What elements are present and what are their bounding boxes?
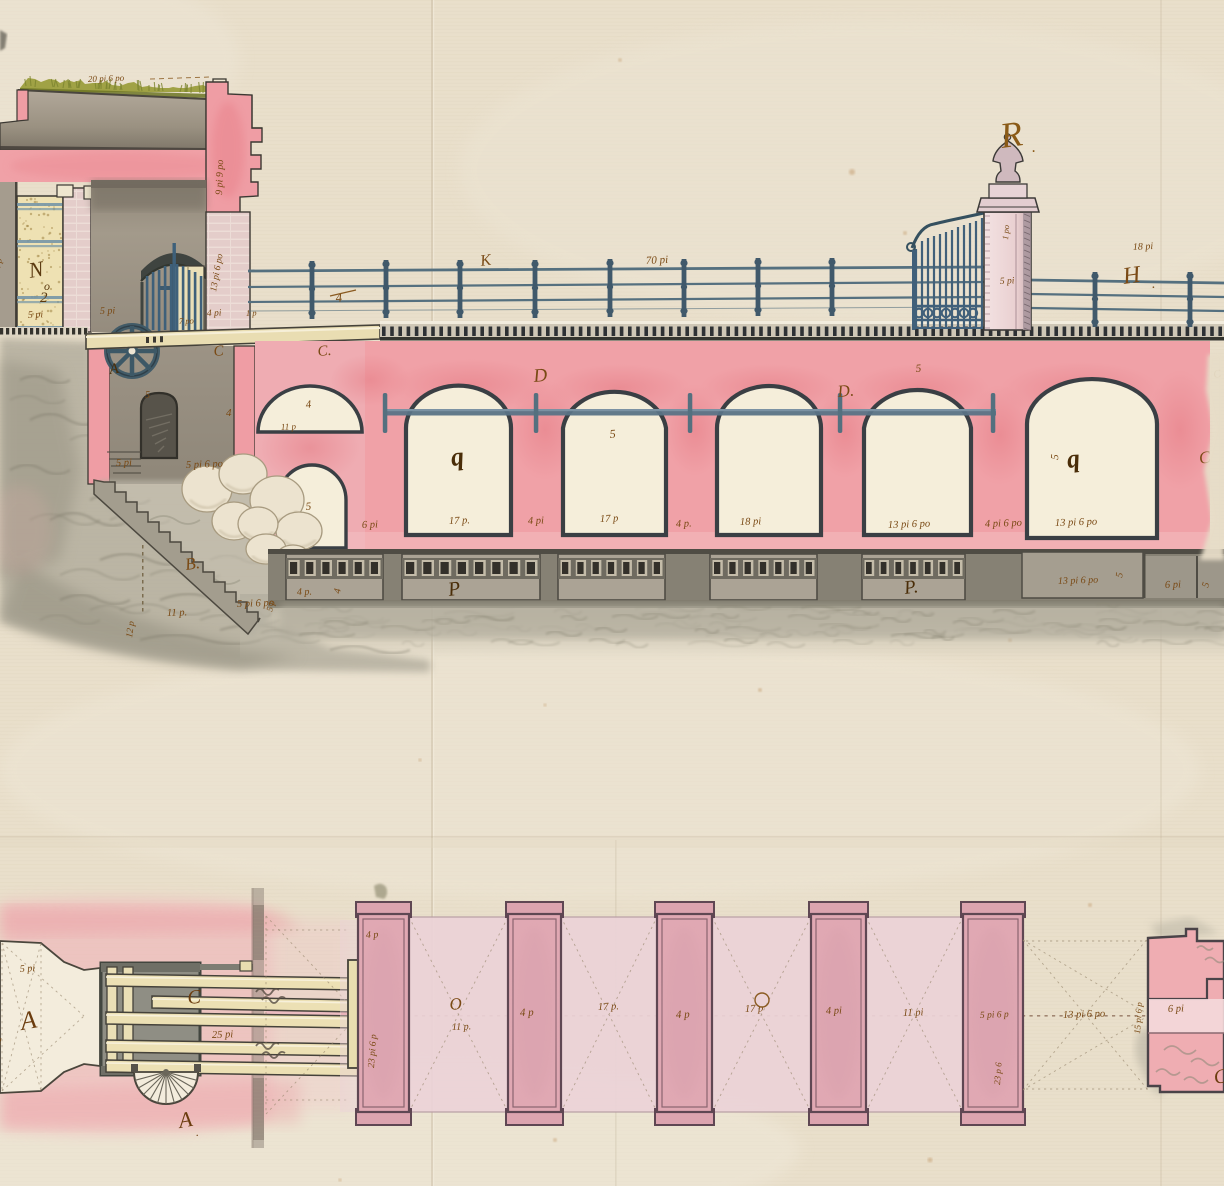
svg-text:5 pi: 5 pi [1000, 276, 1015, 287]
svg-text:5 pi: 5 pi [19, 963, 35, 975]
svg-text:.: . [1152, 277, 1156, 292]
svg-text:13 pi 6 po: 13 pi 6 po [1055, 517, 1098, 529]
svg-text:5 pi: 5 pi [100, 305, 116, 317]
svg-text:1 po: 1 po [1000, 224, 1011, 240]
svg-text:18 pi: 18 pi [740, 516, 762, 528]
svg-text:.: . [196, 1125, 199, 1139]
svg-text:13 pi 6 po: 13 pi 6 po [1063, 1009, 1106, 1021]
svg-text:D.: D. [836, 381, 855, 401]
svg-text:D: D [532, 365, 549, 387]
svg-text:4 pi: 4 pi [826, 1005, 842, 1017]
svg-text:4 p: 4 p [676, 1009, 691, 1021]
svg-text:4 pi: 4 pi [207, 308, 222, 319]
svg-text:70 pi: 70 pi [646, 254, 669, 267]
svg-text:5 pi 6 po: 5 pi 6 po [186, 459, 223, 471]
svg-text:5 pi: 5 pi [28, 309, 44, 321]
svg-text:7 po: 7 po [179, 315, 194, 326]
svg-text:17 p.: 17 p. [598, 1001, 619, 1013]
svg-text:B.: B. [184, 553, 201, 574]
svg-text:4 pi 6 po: 4 pi 6 po [985, 518, 1022, 530]
svg-text:25 pi: 25 pi [212, 1029, 234, 1041]
svg-text:5: 5 [145, 390, 150, 401]
svg-text:5 pi 6 p: 5 pi 6 p [980, 1010, 1009, 1021]
svg-text:4 p: 4 p [366, 929, 379, 941]
svg-text:17 p.: 17 p. [449, 515, 470, 527]
svg-text:4 pi: 4 pi [528, 515, 544, 527]
svg-text:C.: C. [317, 343, 332, 360]
svg-text:O: O [449, 994, 463, 1014]
svg-text:11 p: 11 p [281, 421, 297, 432]
svg-text:4 p.: 4 p. [676, 518, 692, 530]
svg-text:20 pi 6 po: 20 pi 6 po [88, 73, 125, 84]
svg-text:6 pi: 6 pi [1165, 579, 1181, 591]
svg-text:13 pi 6 po: 13 pi 6 po [888, 519, 931, 531]
svg-text:9 pi 9 po: 9 pi 9 po [214, 159, 226, 195]
svg-text:23 p 6: 23 p 6 [992, 1061, 1004, 1085]
svg-text:1 p: 1 p [246, 308, 257, 318]
svg-text:4 p.: 4 p. [297, 586, 312, 598]
svg-text:6 pi: 6 pi [362, 519, 378, 531]
svg-text:11 p.: 11 p. [167, 607, 188, 619]
svg-text:17 p: 17 p [745, 1003, 764, 1015]
svg-text:C: C [187, 986, 203, 1009]
svg-text:5 pi: 5 pi [116, 457, 132, 469]
svg-text:6 pi: 6 pi [1168, 1003, 1184, 1015]
svg-text:18 pi: 18 pi [1133, 241, 1154, 253]
svg-text:4: 4 [226, 407, 232, 419]
svg-text:11 p.: 11 p. [452, 1021, 472, 1033]
svg-text:P.: P. [902, 576, 920, 599]
svg-text:17 p: 17 p [600, 513, 619, 525]
svg-text:4 p: 4 p [520, 1007, 535, 1019]
svg-text:13 pi 6 po: 13 pi 6 po [1058, 575, 1099, 587]
svg-text:11 pi: 11 pi [903, 1007, 924, 1019]
svg-text:.: . [1032, 139, 1036, 156]
svg-text:2: 2 [40, 290, 48, 306]
svg-text:5: 5 [609, 427, 616, 441]
